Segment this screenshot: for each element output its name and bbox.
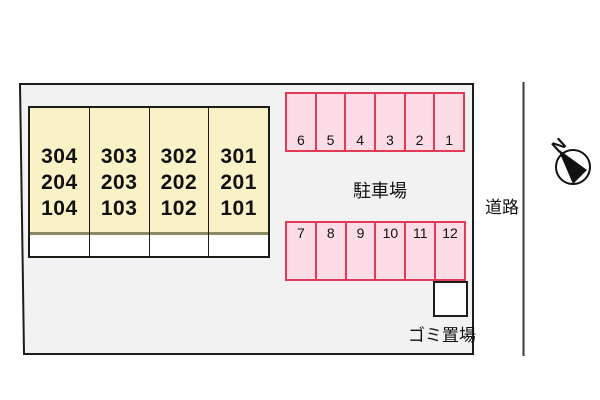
room-number: 302 (161, 144, 198, 170)
room-number: 104 (41, 196, 78, 222)
room-number: 102 (161, 196, 198, 222)
room-number: 301 (220, 144, 257, 170)
garbage-label: ゴミ置場 (404, 321, 480, 346)
building-column-rooms: 301 201 101 (209, 108, 268, 235)
building-entry-strip (150, 235, 209, 256)
room-number: 103 (101, 196, 138, 222)
road-label: 道路 (484, 193, 520, 218)
parking-space: 3 (376, 94, 406, 150)
building-column: 301 201 101 (209, 108, 268, 256)
parking-space: 12 (436, 223, 464, 279)
room-number: 304 (41, 144, 78, 170)
room-number: 101 (220, 196, 257, 222)
parking-lot-label: 駐車場 (340, 177, 420, 203)
parking-row-bottom: 7 8 9 10 11 12 (285, 221, 466, 281)
parking-space: 8 (317, 223, 347, 279)
room-number: 204 (41, 170, 78, 196)
building-column-rooms: 304 204 104 (30, 108, 89, 235)
building-column-rooms: 303 203 103 (90, 108, 149, 235)
room-number: 303 (101, 144, 138, 170)
compass-icon: N (548, 134, 590, 184)
parking-space: 11 (406, 223, 436, 279)
parking-space: 9 (347, 223, 377, 279)
building-column: 302 202 102 (150, 108, 210, 256)
parking-space: 7 (287, 223, 317, 279)
building-entry-strip (90, 235, 149, 256)
room-number: 201 (220, 170, 257, 196)
parking-row-top: 6 5 4 3 2 1 (285, 92, 465, 152)
room-number: 202 (161, 170, 198, 196)
building-column: 303 203 103 (90, 108, 150, 256)
parking-space: 4 (346, 94, 376, 150)
building-column: 304 204 104 (30, 108, 90, 256)
parking-space: 2 (406, 94, 436, 150)
parking-space: 6 (287, 94, 317, 150)
parking-space: 10 (376, 223, 406, 279)
room-number: 203 (101, 170, 138, 196)
building-entry-strip (30, 235, 89, 256)
building-block: 304 204 104 303 203 103 302 202 102 (28, 106, 270, 258)
parking-space: 5 (317, 94, 347, 150)
site-plan: N 304 204 104 303 203 103 302 202 102 (0, 0, 600, 400)
parking-space: 1 (435, 94, 463, 150)
building-entry-strip (209, 235, 268, 256)
garbage-box (433, 281, 468, 317)
building-column-rooms: 302 202 102 (150, 108, 209, 235)
